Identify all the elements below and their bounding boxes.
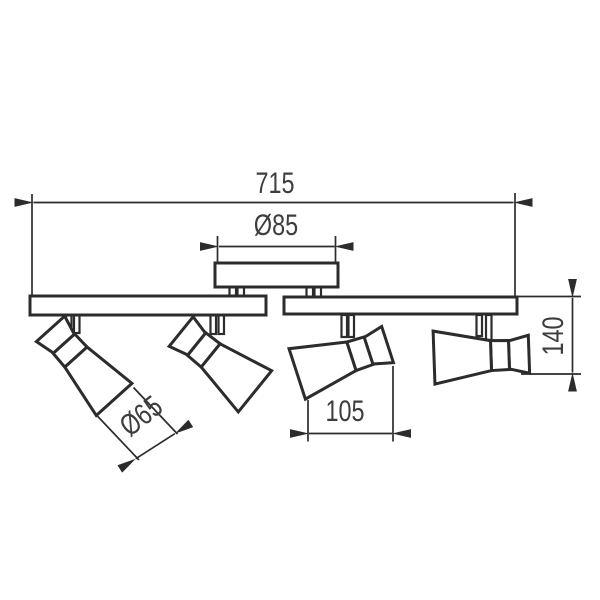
spotlight-head-1 (33, 313, 132, 416)
dimension-label-overall-width: 715 (255, 166, 294, 199)
dimension-canopy-diameter: Ø85 (218, 208, 336, 262)
dimension-label-head-diameter: Ø65 (113, 389, 168, 443)
spotlight-stems (66, 313, 492, 340)
ceiling-canopy (215, 263, 338, 287)
spotlight-stem-4 (486, 315, 492, 340)
fixture-bar-left (30, 296, 266, 315)
fixture-bar-right (284, 297, 517, 314)
dimension-drawing-page: 715 Ø85 Ø65 105 140 (0, 0, 600, 600)
spotlight-ring (490, 340, 509, 371)
dimension-label-height: 140 (536, 316, 569, 355)
spotlight-cap (508, 335, 529, 374)
dimension-label-head-width: 105 (325, 394, 364, 427)
spotlight-stem-3 (349, 315, 355, 337)
spotlight-stem-3 (342, 315, 348, 337)
spotlight-stem-4 (477, 315, 483, 336)
fixture-dimension-diagram: 715 Ø85 Ø65 105 140 (0, 0, 600, 600)
spotlight-cone (433, 329, 492, 384)
dimension-label-canopy-diameter: Ø85 (254, 208, 298, 241)
dimension-line (136, 434, 175, 459)
